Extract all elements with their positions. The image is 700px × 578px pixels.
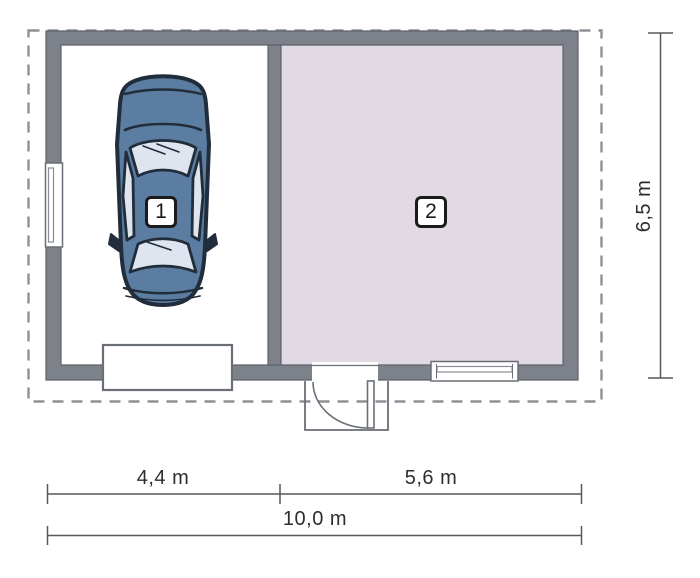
- window-left: [46, 163, 63, 247]
- window-bottom-glazing: [437, 367, 512, 373]
- window-left-glazing: [49, 168, 54, 242]
- room-label-1: 1: [145, 196, 177, 228]
- partition-wall: [268, 45, 281, 365]
- floor-plan-drawing: [0, 0, 700, 578]
- dim-label-total-width: 10,0 m: [245, 508, 385, 530]
- dim-label-right-width: 5,6 m: [361, 467, 501, 489]
- floor-plan: 1 2 4,4 m 5,6 m 10,0 m 6,5 m: [0, 0, 700, 578]
- room-label-2: 2: [415, 196, 447, 228]
- entry-door: [305, 362, 388, 430]
- dim-label-left-width: 4,4 m: [93, 467, 233, 489]
- door-leaf: [368, 381, 375, 428]
- door-vestibule: [305, 381, 388, 430]
- door-swing-arc: [313, 382, 368, 428]
- window-bottom: [431, 362, 518, 382]
- car-windshield: [130, 239, 196, 272]
- garage-door: [103, 345, 232, 390]
- dim-label-height: 6,5 m: [633, 154, 657, 258]
- car-graphic: [109, 76, 217, 305]
